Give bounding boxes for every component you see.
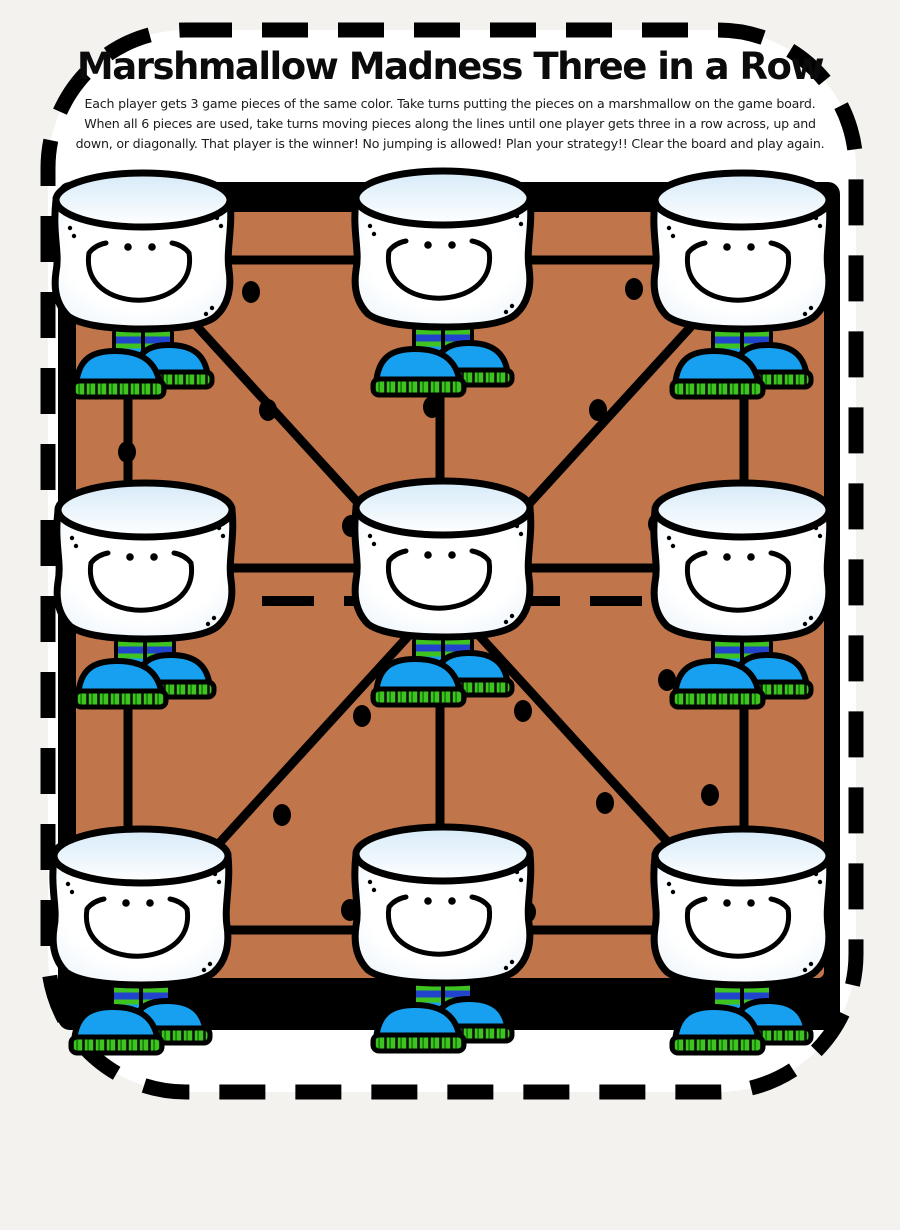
- board-dot: [259, 399, 277, 421]
- marshmallow-piece-bottom-center: [355, 827, 531, 1051]
- marshmallow-piece-middle-right: [654, 483, 830, 707]
- worksheet-page: Marshmallow Madness Three in a Row Each …: [0, 0, 900, 1230]
- board-dot: [625, 278, 643, 300]
- board-dot: [273, 804, 291, 826]
- board-dot: [589, 399, 607, 421]
- board-dot: [514, 700, 532, 722]
- marshmallow-piece-bottom-right: [654, 829, 830, 1053]
- marshmallow-pieces: [53, 171, 830, 1053]
- marshmallow-piece-bottom-left: [53, 829, 229, 1053]
- marshmallow-piece-top-right: [654, 173, 830, 397]
- scene-svg: [0, 0, 900, 1230]
- marshmallow-piece-middle-left: [57, 483, 233, 707]
- board-dot: [242, 281, 260, 303]
- board-dot: [353, 705, 371, 727]
- board-dot: [701, 784, 719, 806]
- marshmallow-piece-middle-center: [355, 481, 531, 705]
- marshmallow-piece-top-center: [355, 171, 531, 395]
- marshmallow-piece-top-left: [55, 173, 231, 397]
- board-dot: [596, 792, 614, 814]
- board-dot: [118, 441, 136, 463]
- board-dot: [423, 396, 441, 418]
